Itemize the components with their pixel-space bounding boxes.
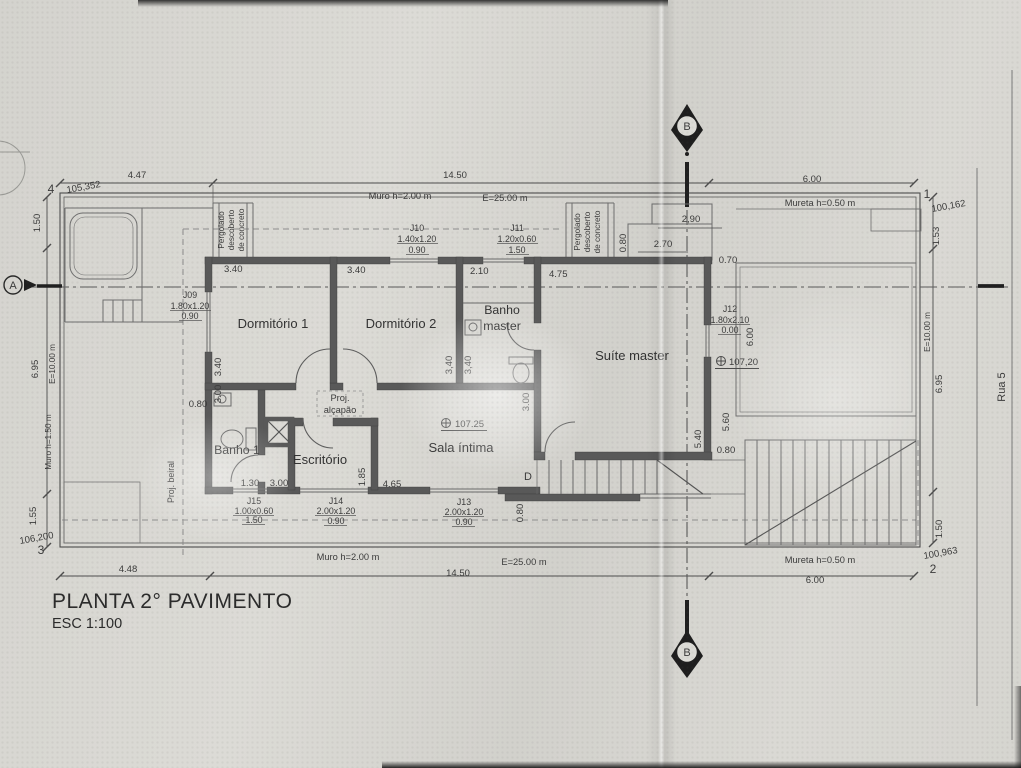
dim-balcony-1: 2,90	[682, 214, 701, 225]
window-label-j14: J14 2.00x1.20 0.90	[317, 496, 356, 526]
note-muro-bottom: Muro h=2.00 m	[317, 552, 380, 562]
corner-4-number: 4	[48, 182, 55, 196]
dim-dorm1-depth2: 3.00	[213, 385, 224, 404]
note-muro-top: Muro h=2.00 m	[369, 191, 432, 201]
dim-balcony-3: 0.80	[618, 234, 629, 253]
dim-bottom-right: 6.00	[806, 575, 825, 586]
svg-text:0.90: 0.90	[327, 516, 344, 526]
svg-text:J14: J14	[329, 496, 343, 506]
svg-text:J11: J11	[510, 223, 524, 233]
pergolado-left-text: Pergolado descoberto de concreto	[217, 208, 246, 251]
dim-stair-width: 0.80	[515, 504, 526, 523]
svg-text:1.80x2.10: 1.80x2.10	[711, 315, 750, 325]
right-terrace	[736, 209, 921, 416]
corner-1-number: 1	[924, 187, 931, 201]
dim-dorm1-width: 3.40	[224, 264, 243, 275]
dim-beiral-offset: 0.80	[189, 399, 208, 410]
section-a-label: A	[9, 280, 17, 292]
section-line-b	[671, 104, 703, 678]
dim-dorm2-width: 3.40	[347, 265, 366, 276]
dim-left-3: 1.55	[28, 507, 39, 526]
dim-esc-width: 3.00	[270, 478, 289, 489]
dim-sala-width: 4.65	[383, 479, 402, 490]
label-door-d: D	[524, 471, 532, 483]
dim-balcony-2: 2.70	[654, 239, 673, 250]
svg-text:1.20x0.60: 1.20x0.60	[498, 234, 537, 244]
pergolado-right-text: Pergolado descoberto de concreto	[573, 210, 602, 253]
svg-text:2.00x1.20: 2.00x1.20	[445, 507, 484, 517]
note-side-length-right: E=10.00 m	[923, 312, 932, 352]
level-sala-value: 107.25	[455, 419, 484, 430]
window-label-j09: J09 1.80x1.20 0.90	[171, 290, 210, 321]
dim-banho-depth-1: 3,40	[444, 356, 455, 375]
svg-text:J15: J15	[247, 496, 261, 506]
svg-text:descoberto: descoberto	[583, 211, 592, 252]
dim-top-right: 6.00	[803, 174, 822, 185]
dim-bottom-left: 4.48	[119, 564, 138, 575]
external-stair	[711, 440, 916, 545]
room-label-banho-1: Banho 1	[214, 443, 260, 457]
street-lines	[977, 70, 1012, 740]
svg-text:Pergolado: Pergolado	[217, 211, 226, 249]
room-label-dormitorio-2: Dormitório 2	[366, 316, 437, 331]
note-mureta-bottom: Mureta h=0.50 m	[785, 555, 856, 565]
svg-text:J13: J13	[457, 497, 471, 507]
note-wall-length-bottom: E=25.00 m	[501, 557, 546, 567]
corner-3-number: 3	[38, 543, 45, 557]
window-label-j13: J13 2.00x1.20 0.90	[445, 497, 484, 527]
level-terrace-value: 107,20	[729, 357, 758, 368]
dim-esc-depth: 1.85	[357, 468, 368, 487]
label-proj-alcapao-1: Proj.	[330, 393, 349, 403]
room-label-banho-master-1: Banho	[484, 303, 520, 317]
scan-edge-top	[138, 0, 668, 7]
dim-right-3: 1.50	[934, 520, 945, 539]
corner-1-elevation: 100,162	[931, 198, 967, 215]
dim-suite-east-2: 5.40	[693, 430, 704, 449]
svg-text:1.50: 1.50	[245, 515, 262, 525]
svg-text:0.90: 0.90	[455, 517, 472, 527]
dim-balcony-4: 0.70	[719, 255, 738, 266]
dim-terrace-depth: 6.00	[745, 328, 756, 347]
section-b-top-label: B	[683, 121, 690, 133]
corner-2-elevation: 100,963	[923, 545, 959, 562]
lot-boundary	[60, 193, 920, 547]
street-label: Rua 5	[996, 372, 1008, 401]
dim-banho-depth-2: 3,40	[463, 356, 474, 375]
svg-text:1.50: 1.50	[508, 245, 525, 255]
dim-right-1: 1.53	[931, 227, 942, 246]
room-label-suite-master: Suíte master	[595, 348, 669, 363]
window-label-j12: J12 1.80x2.10 0.00	[711, 304, 750, 335]
room-label-sala-intima: Sala íntima	[428, 440, 494, 455]
house-walls	[205, 257, 712, 501]
svg-text:0.90: 0.90	[408, 245, 425, 255]
dim-suite-east-3: 0.80	[717, 445, 736, 456]
label-proj-alcapao-2: alçapão	[324, 405, 357, 415]
floor-plan-drawing: 4.47 14.50 6.00 4 105,352 1 100,162 Muro…	[0, 0, 1021, 768]
note-side-length-left: E=10.00 m	[48, 344, 57, 384]
svg-text:J12: J12	[723, 304, 737, 314]
svg-text:0.00: 0.00	[721, 325, 738, 335]
svg-text:Pergolado: Pergolado	[573, 213, 582, 251]
note-wall-length-top: E=25.00 m	[482, 193, 527, 203]
window-label-j15: J15 1.00x0.60 1.50	[235, 496, 274, 525]
page-scale: ESC 1:100	[52, 616, 122, 632]
dim-left-1: 1.50	[32, 214, 43, 233]
svg-text:1.40x1.20: 1.40x1.20	[398, 234, 437, 244]
page-title: PLANTA 2° PAVIMENTO	[52, 590, 292, 613]
dim-dorm1-depth: 3.40	[213, 358, 224, 377]
internal-stair	[537, 460, 703, 494]
dim-right-2: 6.95	[934, 375, 945, 394]
room-label-escritorio: Escritório	[293, 452, 347, 467]
svg-text:de concreto: de concreto	[593, 210, 602, 253]
note-muro-left: Muro h=1.50 m	[44, 414, 53, 469]
dim-suite-width: 4.75	[549, 269, 568, 280]
room-label-banho-master-2: master	[483, 319, 521, 333]
section-b-bottom-label: B	[683, 647, 690, 659]
dim-banho-width: 2.10	[470, 266, 489, 277]
suite-balcony	[628, 204, 722, 260]
window-label-j10: J10 1.40x1.20 0.90	[398, 223, 437, 255]
svg-text:0.90: 0.90	[181, 311, 198, 321]
section-line-a	[4, 276, 1008, 294]
scan-edge-bottom	[382, 761, 1021, 768]
svg-text:de concreto: de concreto	[237, 208, 246, 251]
dim-top-left: 4.47	[128, 170, 147, 181]
svg-text:J09: J09	[183, 290, 197, 300]
toilet-bowl-master-icon	[513, 363, 529, 383]
svg-text:2.00x1.20: 2.00x1.20	[317, 506, 356, 516]
corner-2-number: 2	[930, 562, 937, 576]
dim-suite-east-1: 5.60	[721, 413, 732, 432]
svg-text:1.80x1.20: 1.80x1.20	[171, 301, 210, 311]
dim-top-mid: 14.50	[443, 170, 467, 181]
dim-bottom-mid: 14.50	[446, 568, 470, 579]
scan-artifacts	[0, 141, 30, 195]
left-terrace	[64, 208, 213, 543]
dim-left-2: 6.95	[30, 360, 41, 379]
room-label-dormitorio-1: Dormitório 1	[238, 316, 309, 331]
svg-text:descoberto: descoberto	[227, 209, 236, 250]
dim-esc-offset: 1.30	[241, 478, 260, 489]
eave-projection-dashed	[62, 229, 918, 558]
svg-text:J10: J10	[410, 223, 424, 233]
floor-plan-scan: 4.47 14.50 6.00 4 105,352 1 100,162 Muro…	[0, 0, 1021, 768]
dim-sala-depth: 3.00	[521, 393, 532, 412]
note-mureta-top: Mureta h=0.50 m	[785, 198, 856, 208]
window-label-j11: J11 1.20x0.60 1.50	[498, 223, 537, 255]
scan-edge-right	[1014, 686, 1021, 768]
label-proj-beiral: Proj. beiral	[166, 461, 176, 503]
